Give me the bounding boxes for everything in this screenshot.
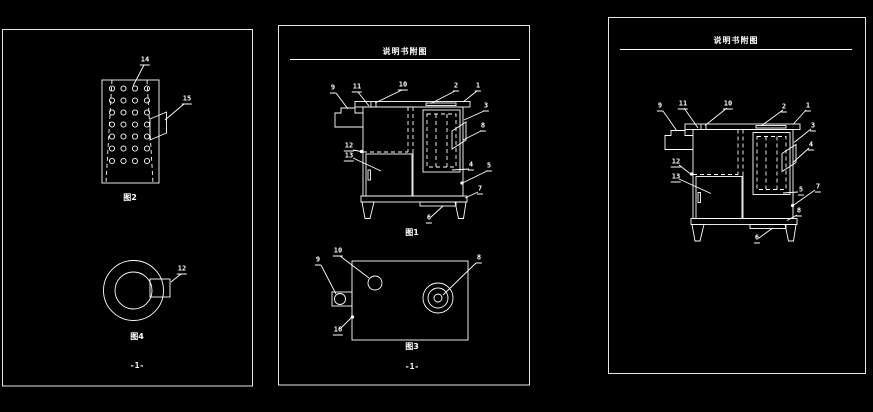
part-label: 12 bbox=[671, 159, 681, 168]
part-label: 12 bbox=[344, 143, 354, 152]
right-sheet-border bbox=[609, 18, 866, 374]
perforated-plate-drawing bbox=[102, 65, 184, 183]
part-label: 13 bbox=[344, 153, 354, 162]
part-label: 13 bbox=[671, 174, 681, 183]
part-label: 1 bbox=[475, 83, 481, 92]
right-sheet-title: 说明书附图 bbox=[714, 37, 759, 45]
middle-sheet-border bbox=[279, 26, 530, 386]
part-label: 4 bbox=[808, 142, 814, 151]
part-label: 5 bbox=[486, 163, 492, 172]
part-label-15: 15 bbox=[182, 96, 192, 105]
figure-caption-base: 图3 bbox=[405, 343, 419, 351]
middle-page-marker: -1- bbox=[405, 363, 419, 371]
cad-drawing-canvas: 14 15 图2 12 图4 -1- 说明书附图 9 11 10 2 1 3 8… bbox=[0, 0, 873, 412]
part-label: 6 bbox=[426, 215, 432, 224]
right-boiler-figure bbox=[663, 108, 815, 241]
part-label: 10 bbox=[398, 82, 408, 91]
part-label: 10 bbox=[723, 101, 733, 110]
part-label: 3 bbox=[810, 123, 816, 132]
middle-boiler-leaders bbox=[336, 90, 487, 217]
part-label: 6 bbox=[754, 235, 760, 244]
part-label: 4 bbox=[468, 162, 474, 171]
figure-caption-plate: 图2 bbox=[123, 194, 137, 202]
plate-flap bbox=[150, 112, 167, 140]
part-label: 11 bbox=[352, 84, 362, 93]
part-label: 3 bbox=[483, 103, 489, 112]
part-label: 7 bbox=[477, 186, 483, 195]
drawing-linework bbox=[0, 0, 873, 412]
part-label: 5 bbox=[798, 187, 804, 196]
part-label: 10 bbox=[333, 248, 343, 257]
part-label: 1 bbox=[805, 103, 811, 112]
ring-drawing bbox=[104, 261, 182, 321]
figure-caption-ring: 图4 bbox=[130, 333, 144, 341]
middle-sheet-title: 说明书附图 bbox=[383, 48, 428, 56]
part-label: 8 bbox=[796, 208, 802, 217]
left-sheet-border bbox=[3, 30, 253, 387]
part-label: 16 bbox=[333, 327, 343, 336]
part-label: 9 bbox=[330, 85, 336, 94]
plate-hole-grid bbox=[109, 86, 149, 164]
figure-caption-boiler: 图1 bbox=[405, 229, 419, 237]
part-label-14: 14 bbox=[140, 57, 150, 66]
part-label: 9 bbox=[315, 257, 321, 266]
part-label: 8 bbox=[476, 255, 482, 264]
left-page-marker: -1- bbox=[130, 362, 144, 370]
part-label: 2 bbox=[781, 104, 787, 113]
part-label-12: 12 bbox=[177, 266, 187, 275]
part-label: 8 bbox=[480, 123, 486, 132]
base-plan-drawing bbox=[321, 256, 476, 340]
leader-15 bbox=[165, 104, 184, 120]
middle-boiler-figure bbox=[335, 90, 487, 219]
leader-12 bbox=[171, 274, 181, 282]
part-label: 7 bbox=[815, 184, 821, 193]
part-label: 11 bbox=[678, 101, 688, 110]
part-label: 2 bbox=[453, 83, 459, 92]
leader-14 bbox=[133, 65, 144, 86]
part-label: 9 bbox=[657, 103, 663, 112]
